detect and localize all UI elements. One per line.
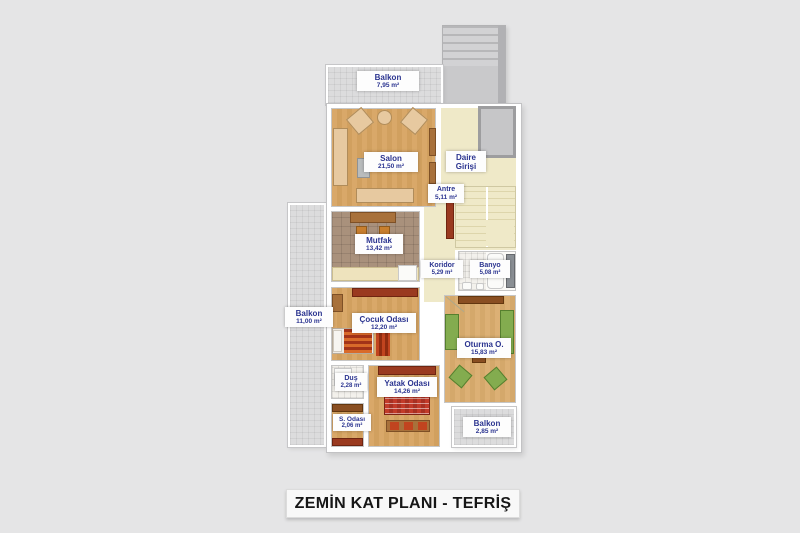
kitchen-table-icon xyxy=(350,212,396,223)
room-label-daire-girisi: Daire Girişi xyxy=(446,151,486,172)
room-label-koridor: Koridor 5,29 m² xyxy=(421,260,463,278)
room-label-antre: Antre 5,11 m² xyxy=(428,184,464,203)
cabinet-icon xyxy=(332,438,363,446)
room-label-oturma-odasi: Oturma O. 15,83 m² xyxy=(457,338,511,358)
room-label-dus: Duş 2,28 m² xyxy=(335,373,367,391)
room-label-banyo: Banyo 5,08 m² xyxy=(470,260,510,278)
appliance-icon xyxy=(398,265,417,281)
room-label-mutfak: Mutfak 13,42 m² xyxy=(355,234,403,254)
room-label-balkon-br: Balkon 2,85 m² xyxy=(463,417,511,437)
sofa-icon xyxy=(356,188,414,203)
room-label-s-odasi: S. Odası 2,06 m² xyxy=(333,414,371,431)
exterior-stairs xyxy=(442,25,506,107)
dresser-drawer xyxy=(404,422,413,430)
room-label-salon: Salon 21,50 m² xyxy=(364,152,418,172)
round-table-icon xyxy=(377,110,392,125)
dresser-drawer xyxy=(390,422,399,430)
sink-icon xyxy=(476,283,484,290)
plan-title: ZEMİN KAT PLANI - TEFRİŞ xyxy=(295,495,512,513)
cabinet-icon xyxy=(429,162,436,184)
room-label-balkon-top: Balkon 7,95 m² xyxy=(357,71,419,91)
cabinet-icon xyxy=(332,404,363,412)
wardrobe-icon xyxy=(378,366,436,375)
room-label-balkon-left: Balkon 11,00 m² xyxy=(285,307,333,327)
sofa-icon xyxy=(333,128,348,186)
sideboard-icon xyxy=(458,296,504,304)
toilet-icon xyxy=(462,282,472,290)
plan-title-bar: ZEMİN KAT PLANI - TEFRİŞ xyxy=(286,489,520,518)
exterior-stairs-edge xyxy=(498,26,505,106)
pillow-icon xyxy=(333,330,342,352)
wardrobe-icon xyxy=(352,288,418,297)
cabinet-icon xyxy=(429,128,436,156)
dresser-drawer xyxy=(418,422,427,430)
interior-stairwell xyxy=(455,186,516,248)
room-label-yatak-odasi: Yatak Odası 14,26 m² xyxy=(377,377,437,397)
desk-icon xyxy=(332,294,343,312)
floor-plan-canvas: Balkon 7,95 m² Salon 21,50 m² Daire Giri… xyxy=(0,0,800,533)
stairwell-landing xyxy=(486,220,514,246)
exterior-stairs-treads xyxy=(443,26,505,66)
room-label-cocuk-odasi: Çocuk Odası 12,20 m² xyxy=(352,313,416,333)
